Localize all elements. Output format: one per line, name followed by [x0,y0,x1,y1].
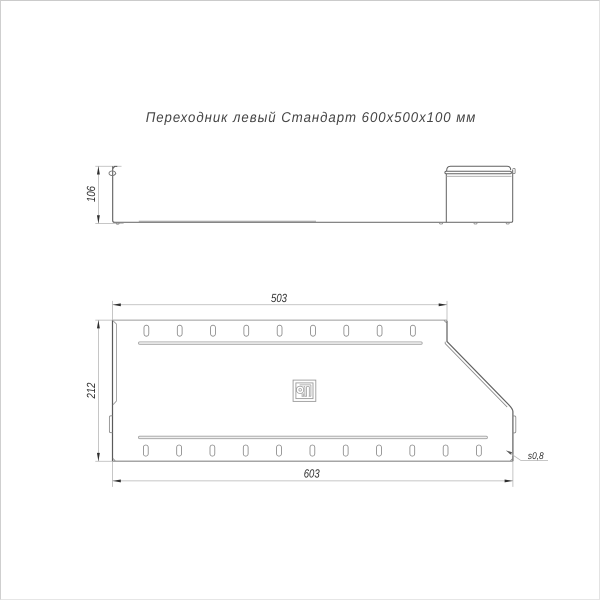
svg-text:212: 212 [84,382,98,399]
svg-text:s0,8: s0,8 [528,451,544,462]
svg-text:106: 106 [84,186,98,202]
svg-text:Переходник левый Стандарт 600х: Переходник левый Стандарт 600х500х100 мм [146,110,477,126]
svg-text:503: 503 [271,291,287,305]
svg-text:603: 603 [304,467,320,481]
